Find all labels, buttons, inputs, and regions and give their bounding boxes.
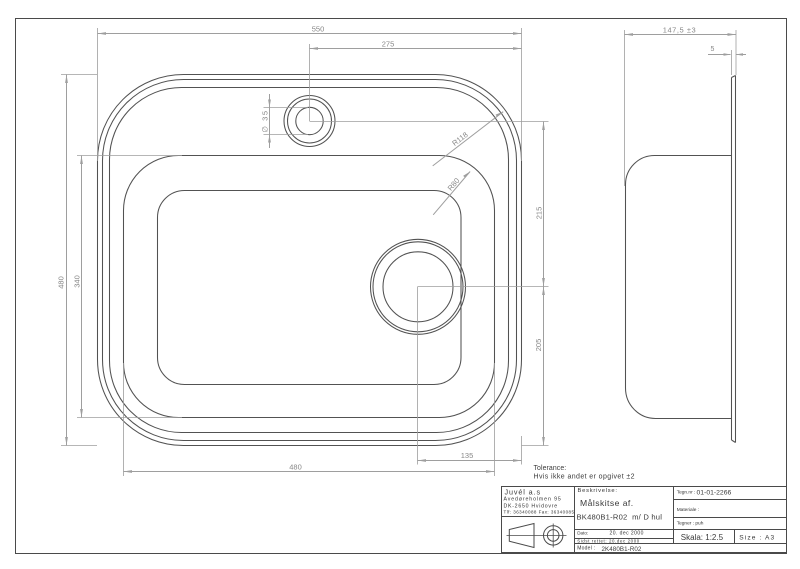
svg-text:Målskitse af.: Målskitse af. xyxy=(580,498,634,508)
svg-text:Tlf: 36340088 Fax: 36340085: Tlf: 36340088 Fax: 36340085 xyxy=(504,510,575,515)
svg-text:Tegner : puh: Tegner : puh xyxy=(677,521,704,527)
svg-text:135: 135 xyxy=(461,451,474,460)
svg-text:Model :: Model : xyxy=(577,546,595,552)
svg-text:205: 205 xyxy=(534,339,543,352)
svg-text:Beskrivelse:: Beskrivelse: xyxy=(578,488,618,494)
svg-text:275: 275 xyxy=(382,40,395,49)
svg-text:215: 215 xyxy=(534,207,543,220)
svg-text:147,5 ±3: 147,5 ±3 xyxy=(663,26,697,35)
svg-text:2K480B1-R02: 2K480B1-R02 xyxy=(602,546,642,553)
svg-text:BK480B1-R02 m/ D hul: BK480B1-R02 m/ D hul xyxy=(577,512,663,521)
svg-text:5: 5 xyxy=(711,46,715,53)
svg-text:Dato:: Dato: xyxy=(577,530,588,535)
svg-text:∅ 35: ∅ 35 xyxy=(261,109,270,132)
svg-text:20. dec 2000: 20. dec 2000 xyxy=(610,530,644,536)
svg-text:480: 480 xyxy=(289,463,302,472)
svg-text:Skala: 1:2.5: Skala: 1:2.5 xyxy=(681,533,724,542)
svg-text:550: 550 xyxy=(312,25,325,34)
svg-text:Size : A3: Size : A3 xyxy=(739,534,775,541)
svg-text:Tolerance:: Tolerance: xyxy=(534,465,567,472)
svg-text:Hvis ikke andet er opgivet ±2: Hvis ikke andet er opgivet ±2 xyxy=(534,474,635,481)
svg-text:Materiale :: Materiale : xyxy=(677,507,699,513)
svg-text:01-01-2266: 01-01-2266 xyxy=(697,489,732,496)
svg-text:Tegn.nr :: Tegn.nr : xyxy=(677,490,696,496)
svg-text:Juvél a.s: Juvél a.s xyxy=(505,487,541,496)
svg-text:340: 340 xyxy=(73,275,82,288)
svg-text:Sidst rettet: 20.dec 2000: Sidst rettet: 20.dec 2000 xyxy=(577,538,640,543)
svg-text:480: 480 xyxy=(57,276,66,289)
svg-text:DK-2650 Hvidovre: DK-2650 Hvidovre xyxy=(504,503,558,509)
svg-text:Avedøreholmen 95: Avedøreholmen 95 xyxy=(504,496,562,502)
